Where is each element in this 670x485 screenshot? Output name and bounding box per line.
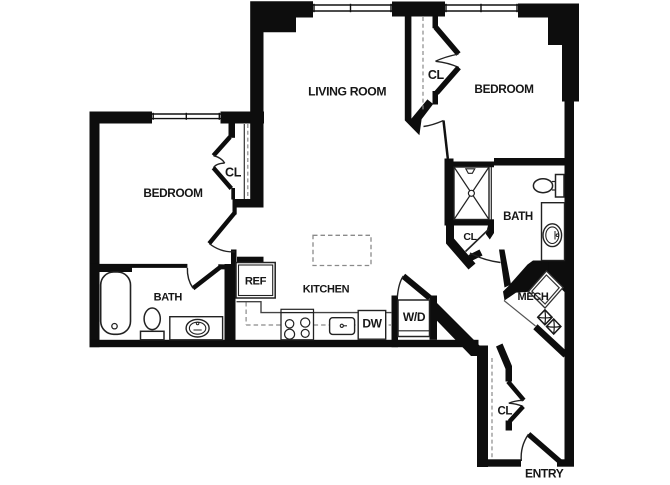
svg-text:CL: CL — [497, 405, 512, 417]
svg-text:MECH: MECH — [518, 291, 549, 303]
svg-text:BEDROOM: BEDROOM — [143, 186, 203, 200]
svg-text:BATH: BATH — [154, 291, 183, 303]
svg-text:CL: CL — [463, 231, 477, 243]
svg-text:BATH: BATH — [503, 211, 533, 223]
svg-text:ENTRY: ENTRY — [525, 466, 564, 480]
svg-text:KITCHEN: KITCHEN — [303, 284, 350, 296]
svg-text:REF: REF — [245, 276, 267, 288]
svg-text:W/D: W/D — [403, 310, 426, 324]
svg-text:CL: CL — [225, 165, 242, 179]
svg-text:DW: DW — [362, 316, 382, 330]
svg-text:BEDROOM: BEDROOM — [474, 82, 534, 96]
svg-text:CL: CL — [428, 68, 445, 82]
svg-text:LIVING ROOM: LIVING ROOM — [308, 85, 386, 99]
